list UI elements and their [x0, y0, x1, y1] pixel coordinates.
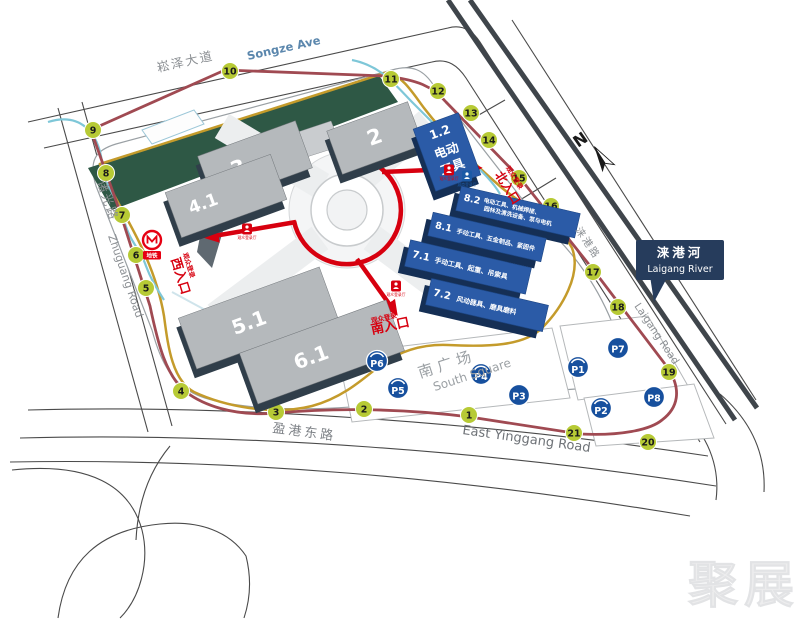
- route-stop-number: 19: [662, 367, 675, 378]
- route-stop-number: 11: [384, 74, 397, 85]
- route-stop-2: 2: [356, 401, 373, 418]
- route-stop-number: 6: [133, 250, 140, 261]
- parking-marker-P2: P2: [591, 398, 612, 419]
- parking-label: P7: [611, 345, 625, 356]
- river-name-zh: 涞港河: [657, 245, 704, 260]
- route-stop-11: 11: [383, 71, 400, 88]
- route-stop-20: 20: [640, 434, 657, 451]
- parking-marker-P1: P1: [568, 357, 589, 378]
- route-stop-19: 19: [661, 364, 678, 381]
- route-stop-number: 13: [464, 108, 477, 119]
- parking-label: P6: [370, 359, 384, 370]
- route-stop-18: 18: [610, 299, 627, 316]
- parking-label: P2: [594, 406, 608, 417]
- route-stop-number: 5: [143, 283, 150, 294]
- metro-icon: 地铁: [143, 231, 161, 260]
- route-stop-1: 1: [461, 407, 478, 424]
- route-stop-14: 14: [481, 132, 498, 149]
- river-name-en: Laigang River: [647, 264, 712, 275]
- route-stop-number: 4: [178, 386, 185, 397]
- route-stop-9: 9: [85, 122, 102, 139]
- road-yinggang-zh: 盈港东路: [271, 420, 337, 444]
- parking-marker-P3: P3: [509, 385, 530, 406]
- route-stop-4: 4: [173, 383, 190, 400]
- parking-marker-P5: P5: [388, 378, 409, 399]
- route-stop-number: 12: [431, 86, 444, 97]
- route-stop-number: 2: [361, 404, 368, 415]
- route-stop-10: 10: [222, 63, 239, 80]
- parking-label: P3: [512, 392, 526, 403]
- parking-label: P8: [647, 394, 661, 405]
- route-stop-12: 12: [430, 83, 447, 100]
- svg-text:观众登录厅: 观众登录厅: [440, 176, 459, 181]
- route-stop-number: 9: [90, 125, 97, 136]
- parking-label: P5: [391, 386, 405, 397]
- route-stop-number: 8: [103, 168, 110, 179]
- road-songze-zh: 崧泽大道: [155, 48, 215, 75]
- route-stop-number: 1: [466, 410, 473, 421]
- route-stop-number: 20: [641, 437, 655, 448]
- route-stop-number: 18: [611, 302, 625, 313]
- road-laigang-zh: 涞港路: [573, 224, 604, 261]
- route-stop-17: 17: [585, 264, 602, 281]
- route-stop-6: 6: [128, 247, 145, 264]
- venue-map: 123456789101112131415161718192021 3 4.1 …: [0, 0, 800, 620]
- svg-text:展商登录厅: 展商登录厅: [458, 182, 477, 187]
- route-stop-number: 3: [273, 407, 280, 418]
- route-stop-number: 17: [586, 267, 599, 278]
- parking-marker-P8: P8: [644, 387, 665, 408]
- route-stop-13: 13: [463, 105, 480, 122]
- parking-label: P1: [571, 365, 585, 376]
- svg-text:观众登录厅: 观众登录厅: [387, 292, 406, 297]
- parking-marker-P6: P6: [367, 351, 388, 372]
- compass-needle-icon: [588, 143, 614, 172]
- route-stop-5: 5: [138, 280, 155, 297]
- svg-text:观众登录厅: 观众登录厅: [238, 235, 257, 240]
- watermark-logo: 聚展: [687, 556, 800, 614]
- map-canvas: 123456789101112131415161718192021 3 4.1 …: [0, 0, 800, 620]
- route-stop-number: 10: [223, 66, 237, 77]
- metro-label: 地铁: [146, 252, 158, 260]
- central-ring-inner: [327, 190, 367, 230]
- parking-marker-P7: P7: [608, 338, 629, 359]
- route-stop-number: 14: [482, 135, 496, 146]
